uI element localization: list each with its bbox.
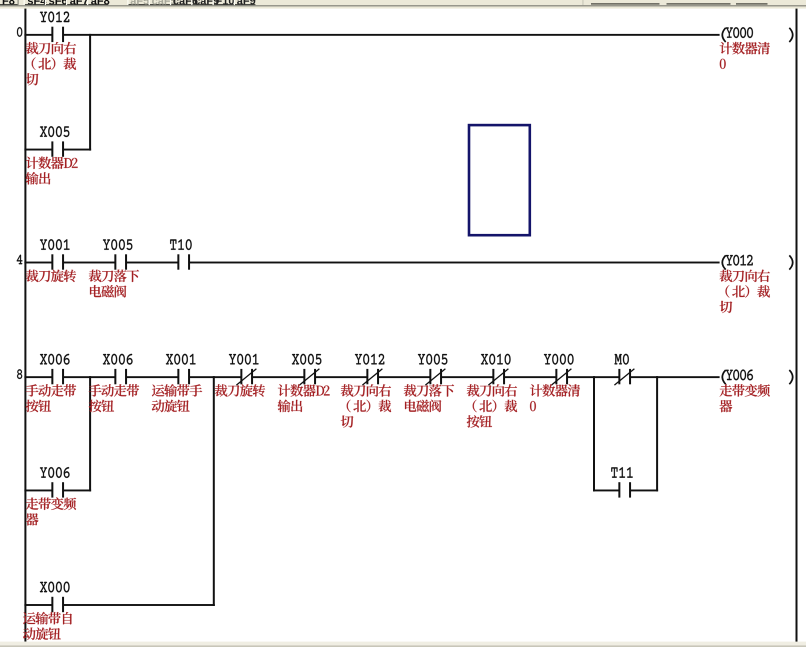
svg-text:aF9: aF9	[237, 0, 256, 8]
svg-text:sF4: sF4	[27, 0, 47, 8]
svg-text:sF6: sF6	[49, 0, 68, 8]
svg-text:F10: F10	[216, 0, 235, 8]
svg-text:aF8: aF8	[91, 0, 110, 8]
svg-text:aF7: aF7	[70, 0, 89, 8]
svg-text:aF5: aF5	[130, 0, 149, 8]
